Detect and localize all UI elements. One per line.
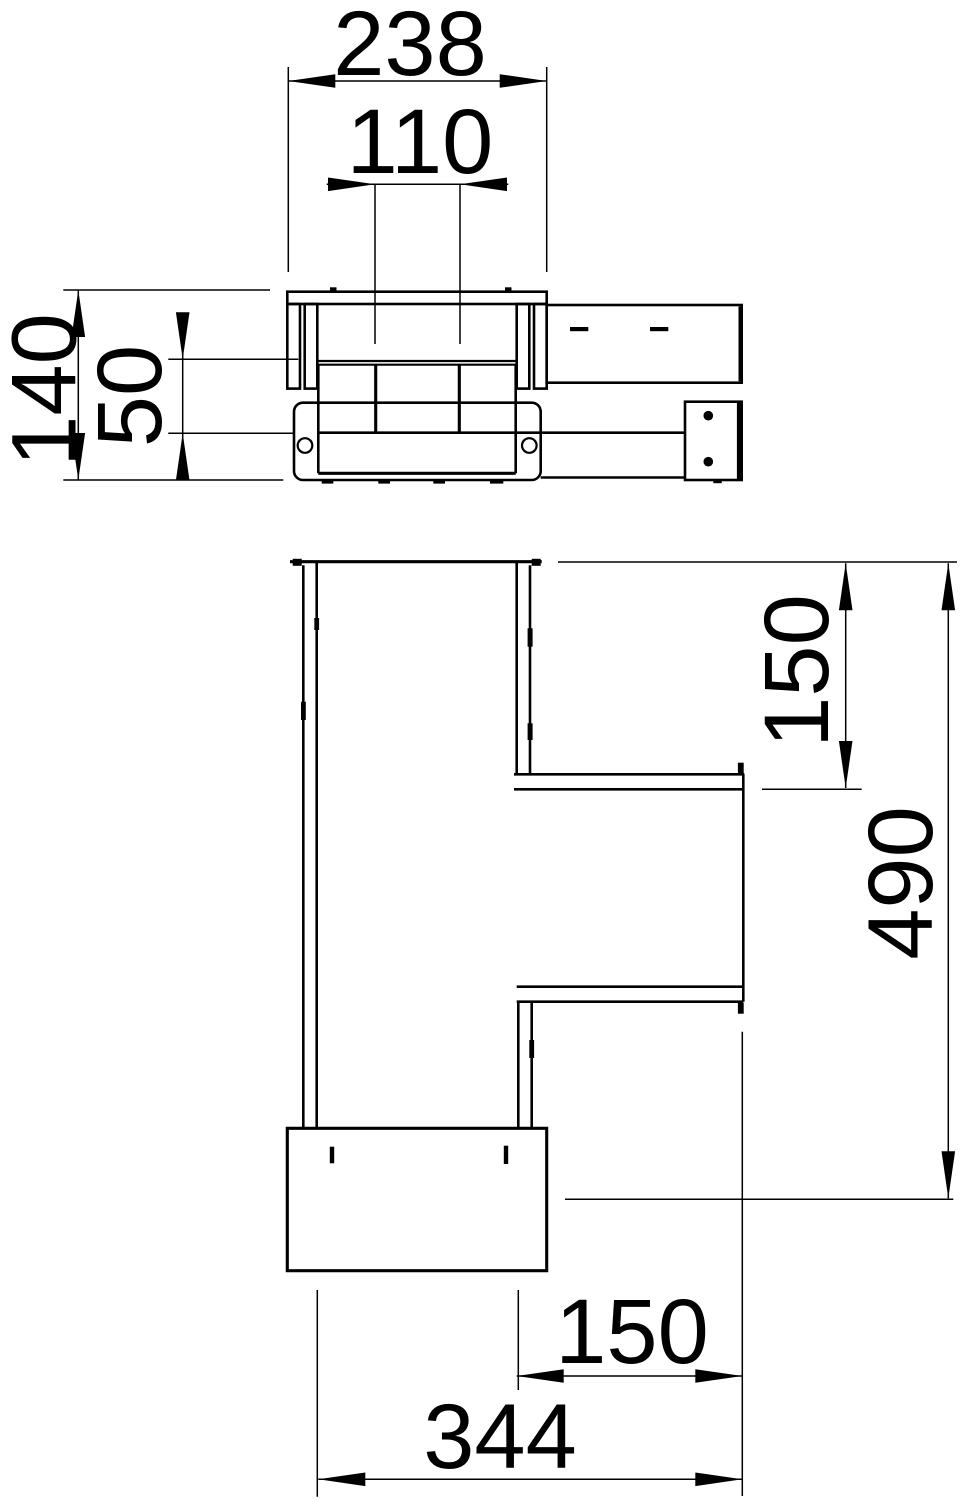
mounting-plate <box>294 403 541 480</box>
foot <box>490 480 503 483</box>
drawing-canvas: 238 110 140 50 <box>0 0 965 1500</box>
technical-drawing-page: 238 110 140 50 <box>0 0 965 1500</box>
box-tick <box>504 1146 508 1164</box>
mounting-hole <box>522 438 537 453</box>
top-cap-end <box>293 559 302 566</box>
bolt <box>704 411 714 421</box>
dimension-label: 150 <box>746 594 848 748</box>
dimension-label: 150 <box>555 1281 709 1383</box>
top-cap-end <box>532 559 541 566</box>
dimension-inner-width-110: 110 <box>327 91 509 344</box>
shelf-end-tab <box>738 1003 744 1014</box>
wall-tick <box>529 1040 534 1058</box>
wall-tick <box>528 628 533 646</box>
arrowhead-bottom <box>942 1151 956 1198</box>
arrowhead-left <box>318 1473 365 1487</box>
arrowhead-top <box>942 563 956 610</box>
arrowhead-right <box>500 74 547 88</box>
dimension-label: 344 <box>423 1386 577 1488</box>
wall-tick <box>301 702 306 720</box>
dimension-label: 50 <box>79 345 181 447</box>
duct-slot <box>650 327 668 331</box>
dimension-label: 238 <box>333 0 487 95</box>
dimension-branch-offset-150: 150 <box>746 563 862 789</box>
foot <box>433 480 445 483</box>
dimension-label: 490 <box>850 806 952 960</box>
elevation-view: 238 110 140 50 <box>0 0 742 484</box>
plan-view: 150 490 150 344 <box>287 559 957 1497</box>
elevation-body <box>287 287 741 483</box>
box-tick <box>330 1147 334 1164</box>
right-wall-outer <box>534 304 547 389</box>
flange-clip <box>330 287 337 292</box>
bolt <box>704 457 714 467</box>
left-wall-inner <box>305 304 318 389</box>
right-wall-inner <box>517 304 530 389</box>
arrowhead-right <box>695 1473 742 1487</box>
dimension-label: 110 <box>347 91 494 193</box>
dimension-inner-height-50: 50 <box>79 312 298 480</box>
left-wall-outer <box>287 304 300 389</box>
arrowhead-left <box>288 74 335 88</box>
duct-slot <box>570 327 588 331</box>
top-flange <box>287 292 546 304</box>
plan-body <box>287 559 744 1271</box>
flange-clip <box>505 287 512 292</box>
angle-bracket <box>685 402 742 480</box>
mounting-hole <box>298 438 313 453</box>
shelf-end-tab <box>738 763 744 775</box>
foot <box>378 480 390 483</box>
wall-tick <box>314 618 319 630</box>
wall-tick <box>528 723 533 740</box>
foot <box>322 480 334 483</box>
foot <box>713 480 721 483</box>
angle-bracket-edge <box>737 403 742 480</box>
side-duct <box>547 305 742 383</box>
